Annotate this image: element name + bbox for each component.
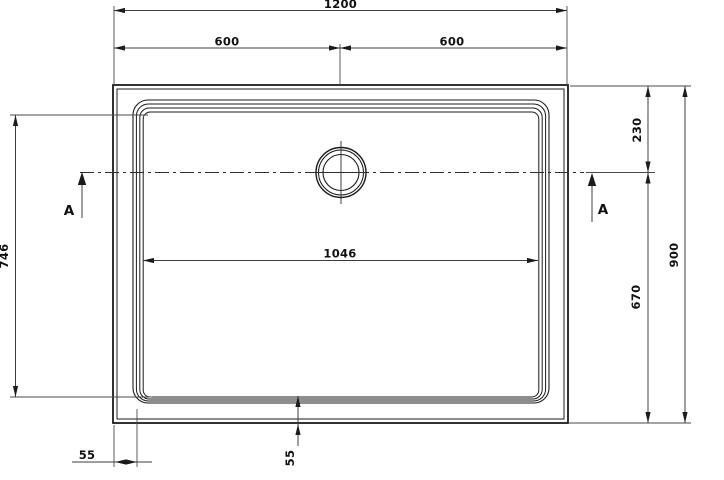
- dim-drain-offset-top: 230: [630, 86, 651, 173]
- dim-basin-inner-height-label: 746: [0, 244, 11, 269]
- arrowhead-center-right: [340, 45, 351, 50]
- dim-overall-width: 1200: [114, 0, 567, 85]
- arrowhead-left: [114, 45, 125, 50]
- dim-half-widths: 600 600: [114, 35, 567, 86]
- arrowhead-bottom: [682, 412, 687, 423]
- dim-overall-width-label: 1200: [324, 0, 357, 11]
- arrowhead-left: [114, 8, 125, 13]
- arrowhead-top: [13, 115, 18, 126]
- arrowhead-left: [115, 459, 126, 464]
- arrowhead-top: [645, 86, 650, 97]
- arrowhead-bottom: [645, 162, 650, 173]
- dim-basin-inner-height: 746: [0, 115, 152, 397]
- dim-rim-margin-bottom-label: 55: [283, 450, 297, 467]
- dim-basin-inner-width: 1046: [143, 247, 538, 264]
- arrowhead-right: [556, 45, 567, 50]
- dim-half-width-left-label: 600: [215, 35, 240, 49]
- dim-rim-margin-left-label: 55: [79, 448, 96, 462]
- dim-overall-height: 900: [667, 86, 688, 423]
- dim-rim-margin-left: 55: [72, 409, 152, 467]
- dim-drain-offset-bottom-label: 670: [629, 285, 643, 310]
- arrowhead-center-left: [329, 45, 340, 50]
- arrowhead-top: [682, 86, 687, 97]
- section-label-right: A: [598, 202, 609, 218]
- drain: [316, 141, 366, 204]
- dim-basin-inner-width-label: 1046: [323, 247, 356, 261]
- dim-rim-margin-bottom: 55: [283, 396, 301, 466]
- section-arrow-up-icon: [588, 173, 596, 186]
- arrowhead-bottom: [645, 412, 650, 423]
- dim-drain-offset-top-label: 230: [630, 118, 644, 143]
- arrowhead-right: [126, 459, 137, 464]
- section-arrow-up-icon: [78, 172, 86, 185]
- drawing-page: 1200 600 600 746 1046 230: [0, 0, 724, 480]
- arrowhead-bottom: [295, 424, 300, 435]
- section-marker-left: A: [64, 172, 86, 219]
- dim-drain-offset-bottom: 670: [629, 173, 651, 424]
- arrowhead-right: [556, 8, 567, 13]
- arrowhead-right: [527, 258, 538, 263]
- dim-overall-height-label: 900: [667, 243, 681, 268]
- section-marker-right: A: [588, 173, 609, 222]
- arrowhead-top: [645, 173, 650, 184]
- arrowhead-bottom: [13, 386, 18, 397]
- technical-drawing-canvas: 1200 600 600 746 1046 230: [0, 0, 724, 480]
- dim-half-width-right-label: 600: [440, 35, 465, 49]
- section-label-left: A: [64, 203, 75, 219]
- arrowhead-left: [143, 258, 154, 263]
